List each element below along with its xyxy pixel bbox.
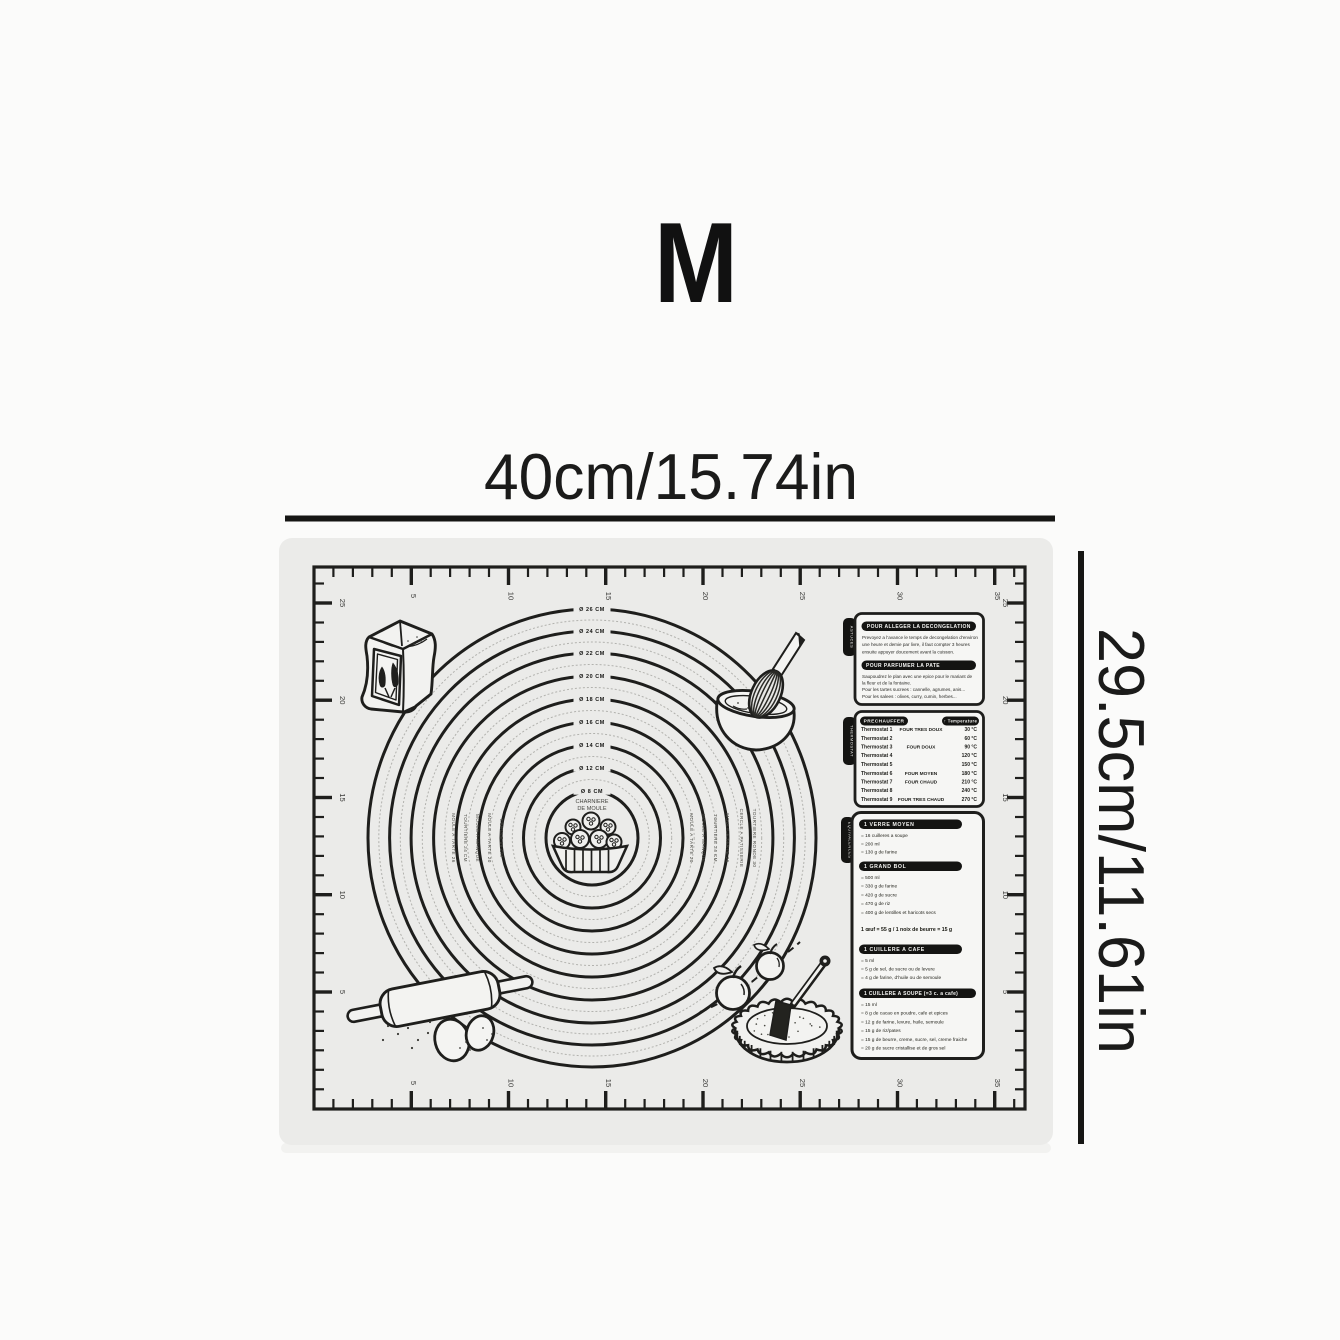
svg-text:5: 5 bbox=[1001, 990, 1010, 994]
svg-text:FOUR CHAUD: FOUR CHAUD bbox=[905, 780, 938, 786]
svg-text:POUR PARFUMER LA PATE: POUR PARFUMER LA PATE bbox=[866, 663, 940, 669]
svg-text:Ø 26 CM: Ø 26 CM bbox=[579, 607, 605, 613]
svg-text:la fleur et de la fontaine.: la fleur et de la fontaine. bbox=[862, 681, 911, 686]
svg-text:30: 30 bbox=[896, 1079, 905, 1087]
svg-text:= 15 g de riz/pates: = 15 g de riz/pates bbox=[861, 1028, 901, 1034]
svg-text:MOULE A TARTE 20: MOULE A TARTE 20 bbox=[689, 813, 694, 863]
svg-text:= 4 g de farine, d’huile ou de: = 4 g de farine, d’huile ou de semoule bbox=[861, 975, 941, 981]
svg-text:FOUR TRES CHAUD: FOUR TRES CHAUD bbox=[898, 797, 945, 803]
svg-text:M: M bbox=[654, 200, 738, 327]
svg-text:= 470 g de riz: = 470 g de riz bbox=[861, 901, 891, 907]
svg-text:FOUR TRES DOUX: FOUR TRES DOUX bbox=[900, 727, 944, 733]
svg-text:270 °C: 270 °C bbox=[962, 797, 978, 803]
svg-text:10: 10 bbox=[338, 891, 347, 899]
svg-text:20: 20 bbox=[701, 1079, 710, 1087]
svg-text:1 GRAND BOL: 1 GRAND BOL bbox=[864, 864, 907, 870]
svg-text:29.5cm/11.61in: 29.5cm/11.61in bbox=[1085, 628, 1158, 1054]
svg-text:210 °C: 210 °C bbox=[962, 780, 978, 786]
svg-text:30: 30 bbox=[896, 592, 905, 600]
svg-text:Saupoudrez le plan avec une ep: Saupoudrez le plan avec une epice pour l… bbox=[862, 674, 973, 679]
svg-text:1 VERRE MOYEN: 1 VERRE MOYEN bbox=[864, 822, 914, 828]
svg-text:TOURTIERE 24 CM: TOURTIERE 24 CM bbox=[713, 814, 718, 862]
svg-text:Pour les tartes sucrees : cann: Pour les tartes sucrees : cannelle, agru… bbox=[862, 687, 965, 692]
svg-text:10: 10 bbox=[507, 592, 516, 600]
svg-text:FOUR MOYEN: FOUR MOYEN bbox=[905, 771, 938, 777]
svg-text:TOURTIERE 24 CM: TOURTIERE 24 CM bbox=[463, 814, 468, 862]
svg-text:TOURTIERE RONDE 30: TOURTIERE RONDE 30 bbox=[752, 809, 757, 868]
svg-text:POUR ALLEGER LA DECONGELATION: POUR ALLEGER LA DECONGELATION bbox=[867, 624, 971, 630]
svg-text:Ø 20 CM: Ø 20 CM bbox=[579, 674, 605, 680]
svg-text:= 330 g de farine: = 330 g de farine bbox=[861, 884, 897, 890]
svg-text:180 °C: 180 °C bbox=[962, 771, 978, 777]
svg-text:Thermostat 1: Thermostat 1 bbox=[861, 727, 893, 733]
svg-text:MOULE A MANQUE: MOULE A MANQUE bbox=[701, 814, 706, 862]
svg-text:5: 5 bbox=[409, 1081, 418, 1085]
svg-text:240 °C: 240 °C bbox=[962, 788, 978, 794]
svg-text:= 130 g de farine: = 130 g de farine bbox=[861, 850, 897, 856]
svg-text:20: 20 bbox=[701, 592, 710, 600]
svg-text:15: 15 bbox=[604, 1079, 613, 1087]
svg-text:10: 10 bbox=[507, 1079, 516, 1087]
svg-text:40cm/15.74in: 40cm/15.74in bbox=[484, 440, 858, 513]
svg-text:Thermostat 3: Thermostat 3 bbox=[861, 745, 893, 751]
svg-text:Ø 24 CM: Ø 24 CM bbox=[579, 629, 605, 635]
svg-text:Thermostat 4: Thermostat 4 bbox=[861, 753, 893, 759]
svg-text:150 °C: 150 °C bbox=[962, 762, 978, 768]
svg-text:Thermostat 7: Thermostat 7 bbox=[861, 780, 893, 786]
svg-text:= 400 g de lentilles et harico: = 400 g de lentilles et haricots secs bbox=[861, 910, 936, 916]
svg-text:Ø 14 CM: Ø 14 CM bbox=[579, 743, 605, 749]
svg-text:DE MOULE: DE MOULE bbox=[577, 806, 606, 812]
svg-text:= 5 ml: = 5 ml bbox=[861, 958, 874, 964]
svg-text:Ø 18 CM: Ø 18 CM bbox=[579, 697, 605, 703]
svg-text:120 °C: 120 °C bbox=[962, 753, 978, 759]
svg-text:= 420 g de sucre: = 420 g de sucre bbox=[861, 892, 897, 898]
svg-text:ensuite appuyer doucement avan: ensuite appuyer doucement avant la cuiss… bbox=[862, 649, 954, 654]
svg-text:MOULE A MANQUE: MOULE A MANQUE bbox=[475, 814, 480, 862]
svg-text:CERCLE A PATISSERIE: CERCLE A PATISSERIE bbox=[739, 809, 744, 868]
svg-text:CHARNIERE: CHARNIERE bbox=[576, 799, 609, 805]
svg-text:20: 20 bbox=[338, 696, 347, 704]
svg-text:10: 10 bbox=[1001, 891, 1010, 899]
svg-text:Pour les salees : olives, curr: Pour les salees : olives, curry, cumin, … bbox=[862, 694, 957, 699]
svg-text:35: 35 bbox=[993, 592, 1002, 600]
svg-text:= 5 g de sel, de sucre ou de l: = 5 g de sel, de sucre ou de levure bbox=[861, 967, 935, 973]
svg-text:PRECHAUFFER: PRECHAUFFER bbox=[864, 719, 905, 725]
svg-text:60 °C: 60 °C bbox=[964, 736, 977, 742]
svg-text:25: 25 bbox=[338, 599, 347, 607]
svg-text:15: 15 bbox=[338, 793, 347, 801]
svg-text:une heure et demie par livre,: une heure et demie par livre, il faut co… bbox=[862, 642, 970, 647]
svg-text:↑ Temperature: ↑ Temperature bbox=[944, 719, 978, 724]
svg-text:= 500 ml: = 500 ml bbox=[861, 875, 880, 881]
svg-text:20: 20 bbox=[1001, 696, 1010, 704]
svg-text:= 20 g de sucre cristallise et: = 20 g de sucre cristallise et de gros s… bbox=[861, 1046, 945, 1052]
svg-text:15: 15 bbox=[1001, 793, 1010, 801]
svg-text:30 °C: 30 °C bbox=[964, 727, 977, 733]
svg-text:Thermostat 8: Thermostat 8 bbox=[861, 788, 893, 794]
svg-text:Thermostat 6: Thermostat 6 bbox=[861, 771, 893, 777]
svg-text:35: 35 bbox=[993, 1079, 1002, 1087]
svg-text:CERCLE 18 CM: CERCLE 18 CM bbox=[499, 819, 504, 858]
svg-text:= 200 ml: = 200 ml bbox=[861, 841, 880, 847]
svg-text:MOULE A TARTE 26: MOULE A TARTE 26 bbox=[451, 813, 456, 863]
svg-text:5: 5 bbox=[338, 990, 347, 994]
svg-text:1 CUILLERE A SOUPE (=3 c. a ca: 1 CUILLERE A SOUPE (=3 c. a cafe) bbox=[864, 991, 958, 997]
svg-text:Ø 8 CM: Ø 8 CM bbox=[581, 789, 603, 795]
svg-text:= 16 cuilleres a soupe: = 16 cuilleres a soupe bbox=[861, 833, 908, 839]
svg-text:FOUR DOUX: FOUR DOUX bbox=[907, 745, 937, 751]
svg-text:Thermostat 9: Thermostat 9 bbox=[861, 797, 893, 803]
svg-text:Ø 16 CM: Ø 16 CM bbox=[579, 720, 605, 726]
svg-text:Thermostat 2: Thermostat 2 bbox=[861, 736, 893, 742]
svg-text:= 12 g de farine, levure, huil: = 12 g de farine, levure, huile, semoule bbox=[861, 1019, 944, 1025]
svg-text:MOULE A TARTE 20: MOULE A TARTE 20 bbox=[487, 813, 492, 863]
svg-text:Prevoyez a l’avance le temps d: Prevoyez a l’avance le temps de decongel… bbox=[862, 635, 978, 640]
svg-text:1 œuf = 55 g / 1 noix de beurr: 1 œuf = 55 g / 1 noix de beurre = 15 g bbox=[861, 927, 952, 933]
svg-text:25: 25 bbox=[798, 1079, 807, 1087]
svg-text:25: 25 bbox=[798, 592, 807, 600]
svg-text:Ø 22 CM: Ø 22 CM bbox=[579, 651, 605, 657]
svg-text:1 CUILLERE A CAFE: 1 CUILLERE A CAFE bbox=[864, 947, 925, 953]
svg-text:25: 25 bbox=[1001, 599, 1010, 607]
svg-text:MOULE A TARTE 26: MOULE A TARTE 26 bbox=[725, 813, 730, 863]
svg-text:= 15 ml: = 15 ml bbox=[861, 1002, 877, 1008]
svg-text:= 15 g de beurre, creme, sucre: = 15 g de beurre, creme, sucre, sel, cre… bbox=[861, 1037, 968, 1043]
svg-text:Ø 12 CM: Ø 12 CM bbox=[579, 766, 605, 772]
svg-text:= 8 g de cacao en poudre, cafe: = 8 g de cacao en poudre, cafe et epices bbox=[861, 1011, 948, 1017]
svg-text:15: 15 bbox=[604, 592, 613, 600]
svg-text:90 °C: 90 °C bbox=[964, 745, 977, 751]
svg-text:Thermostat 5: Thermostat 5 bbox=[861, 762, 893, 768]
svg-text:5: 5 bbox=[409, 594, 418, 598]
